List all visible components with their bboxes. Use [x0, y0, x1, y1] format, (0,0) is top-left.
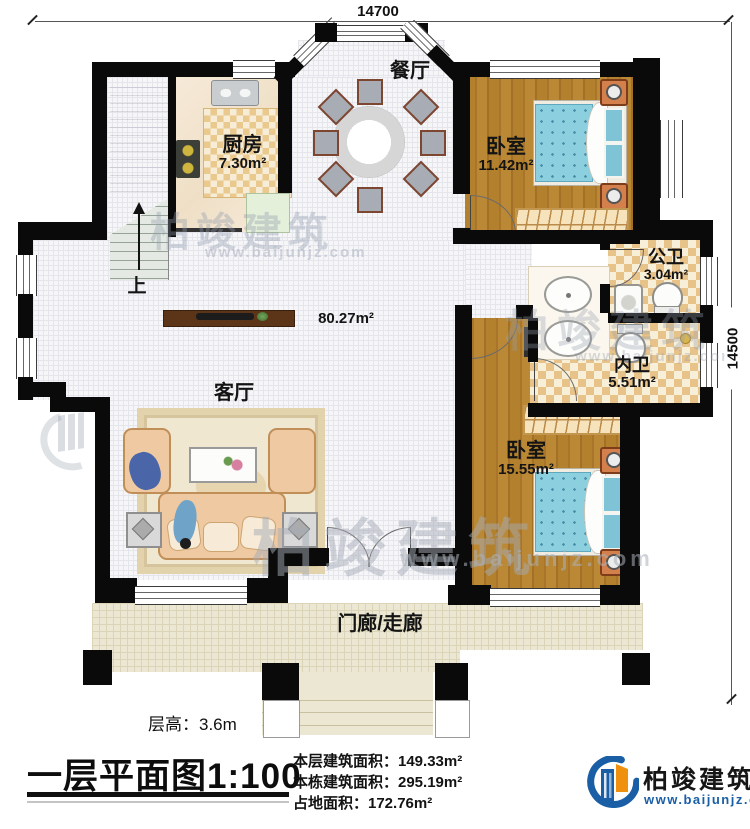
dining-chair: [357, 79, 383, 105]
wall: [600, 284, 610, 313]
room-label-public-bath: 公卫 3.04m²: [636, 247, 696, 283]
company-logo: 柏竣建筑 www.baijunjz.com: [585, 754, 745, 820]
nightstand: [600, 183, 628, 210]
title-underline: [27, 792, 289, 797]
room-label-bedroom2: 卧室 15.55m²: [486, 440, 566, 479]
end-table-left: [126, 512, 162, 548]
room-label-dining: 餐厅: [378, 60, 442, 82]
bed1-pillow: [604, 143, 624, 178]
ensuite-bath-name: 内卫: [598, 355, 666, 375]
column-base: [435, 700, 470, 738]
stairs-up-label: 上: [122, 276, 152, 297]
kitchen-name: 厨房: [195, 134, 290, 156]
plant-icon: [257, 312, 268, 321]
bed1-pillow: [604, 108, 624, 143]
wall: [315, 23, 337, 42]
hall-area-label: 80.27m²: [313, 311, 379, 328]
end-table-right: [282, 512, 318, 548]
plan-title-text: 一层平面图: [27, 757, 207, 796]
floor-drain-icon: [680, 333, 691, 344]
bed2-pillow: [602, 476, 622, 513]
wall: [168, 77, 176, 237]
wall: [608, 313, 700, 323]
window: [233, 60, 275, 79]
bed2-mattress: [535, 472, 591, 552]
window: [135, 586, 247, 605]
company-name: 柏竣建筑: [643, 760, 750, 796]
wall: [95, 578, 137, 603]
sink-icon: [544, 320, 592, 357]
wall: [633, 58, 660, 234]
wall: [633, 220, 713, 240]
window: [337, 25, 405, 42]
dining-chair: [313, 130, 339, 156]
bedroom1-name: 卧室: [468, 136, 544, 158]
floor-height-label: 层高：3.6m: [148, 710, 237, 735]
company-logo-icon: [585, 756, 639, 816]
wall: [283, 548, 329, 566]
sofa-cushion: [239, 515, 277, 552]
coffee-table: [189, 447, 257, 483]
public-bath-name: 公卫: [636, 247, 696, 267]
watermark-logo-icon: [58, 412, 84, 452]
room-label-living: 客厅: [200, 382, 268, 404]
wall: [600, 62, 634, 77]
room-label-porch: 门廊/走廊: [325, 613, 435, 635]
stair-arrow-shaft: [138, 212, 140, 270]
wall: [18, 382, 66, 397]
dimension-top-value: 14700: [337, 3, 419, 20]
dimension-right-value: 14500: [725, 308, 742, 390]
dimension-tick: [27, 15, 38, 26]
window: [16, 338, 37, 379]
window: [700, 257, 718, 306]
window: [700, 343, 718, 388]
person-head: [180, 538, 191, 549]
armchair-right: [268, 428, 316, 494]
nightstand: [600, 79, 628, 106]
bedroom2-name: 卧室: [486, 440, 566, 462]
window: [16, 255, 37, 296]
company-url: www.baijunjz.com: [644, 792, 750, 807]
sofa-cushion: [203, 522, 239, 552]
bedroom2-area: 15.55m²: [486, 462, 566, 479]
wall: [176, 228, 242, 232]
wall: [528, 318, 538, 362]
porch-column: [622, 653, 650, 685]
wall: [455, 305, 469, 319]
wall: [516, 305, 533, 319]
room-label-kitchen: 厨房 7.30m²: [195, 134, 290, 173]
porch-column: [83, 650, 112, 685]
wall: [453, 230, 640, 244]
bed2-pillow: [602, 513, 622, 550]
porch-column: [435, 663, 468, 700]
ensuite-bath-area: 5.51m²: [598, 375, 666, 392]
kitchen-sink: [211, 80, 259, 106]
wall: [528, 403, 713, 417]
kitchen-area: 7.30m²: [195, 156, 290, 173]
bedroom1-area: 11.42m²: [468, 158, 544, 175]
wall: [448, 585, 491, 605]
porch-column: [262, 663, 299, 700]
dining-chair: [420, 130, 446, 156]
dining-chair: [357, 187, 383, 213]
porch-floor-right: [460, 603, 643, 650]
wall: [92, 62, 233, 77]
wall: [455, 305, 472, 589]
wall: [408, 548, 460, 566]
wall: [700, 240, 713, 258]
window: [490, 60, 600, 79]
window: [660, 120, 683, 198]
wall: [18, 294, 33, 340]
window: [490, 588, 600, 607]
stair-upper-flight: [110, 80, 168, 198]
fridge-icon: [246, 193, 290, 233]
wall: [620, 417, 640, 589]
public-bath-area: 3.04m²: [636, 267, 696, 283]
wall: [600, 240, 610, 250]
area-line-1: 本层建筑面积：149.33m²: [293, 750, 462, 771]
plan-scale: 1:100: [207, 757, 302, 796]
tv-icon: [196, 313, 254, 320]
area-line-2: 本栋建筑面积：295.19m²: [293, 771, 462, 792]
floor-plan: 柏竣建筑 www.baijunjz.com 柏竣建筑 www.baijunjz.…: [0, 0, 750, 829]
wall: [92, 62, 107, 240]
wall: [700, 305, 713, 344]
area-line-3: 占地面积：172.76m²: [293, 792, 432, 813]
title-underline-light: [27, 801, 289, 803]
room-label-bedroom1: 卧室 11.42m²: [468, 136, 544, 175]
sink-icon: [544, 276, 592, 313]
stair-arrow-head: [133, 202, 145, 214]
dimension-tick: [723, 15, 734, 26]
room-label-ensuite-bath: 内卫 5.51m²: [598, 355, 666, 392]
column-base: [263, 700, 300, 738]
wall: [18, 222, 107, 240]
dimension-line-top: [35, 21, 730, 22]
